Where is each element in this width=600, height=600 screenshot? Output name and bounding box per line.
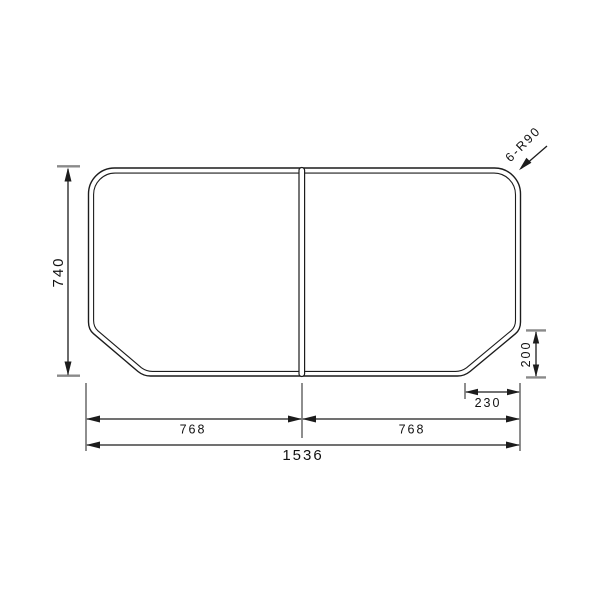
extension-lines [86, 383, 520, 451]
callout-arrow [519, 158, 531, 171]
dim-left-panel-arrow-left [86, 416, 100, 423]
corner-radius-label: 6-R90 [503, 124, 544, 165]
panel-seam [299, 168, 305, 377]
dim-chamfer-width-label: 230 [475, 396, 502, 410]
dim-height-arrow-down [65, 362, 72, 376]
lid-body [89, 168, 521, 377]
dim-left-panel-label: 768 [180, 423, 207, 437]
dim-left-panel-width: 768 [86, 416, 302, 437]
bath-lid-dimension-drawing: 740 200 6-R90 230 [0, 0, 600, 600]
dim-chamfer-height-label: 200 [519, 341, 533, 368]
dim-total-width: 1536 [86, 442, 520, 465]
dim-chamfer-height-arrow-down [533, 365, 539, 378]
dim-right-panel-arrow-right [506, 416, 520, 423]
callout-corner-radius: 6-R90 [503, 124, 547, 171]
dim-total-width-arrow-right [506, 442, 520, 449]
dim-height: 740 [50, 166, 80, 375]
dim-right-panel-width: 768 [302, 416, 520, 437]
dim-chamfer-height-arrow-up [533, 331, 539, 344]
dim-chamfer-width-arrow-right [507, 389, 520, 396]
technical-drawing-canvas: 740 200 6-R90 230 [0, 0, 600, 600]
dim-chamfer-width: 230 [465, 389, 520, 410]
dim-height-arrow-up [65, 168, 72, 182]
dim-chamfer-height: 200 [519, 330, 546, 377]
dim-left-panel-arrow-right [288, 416, 302, 423]
dim-right-panel-label: 768 [399, 423, 426, 437]
dim-right-panel-arrow-left [302, 416, 316, 423]
dim-total-width-arrow-left [86, 442, 100, 449]
dim-height-label: 740 [50, 256, 67, 287]
dim-chamfer-width-arrow-left [465, 389, 478, 396]
dim-total-width-label: 1536 [282, 447, 323, 464]
